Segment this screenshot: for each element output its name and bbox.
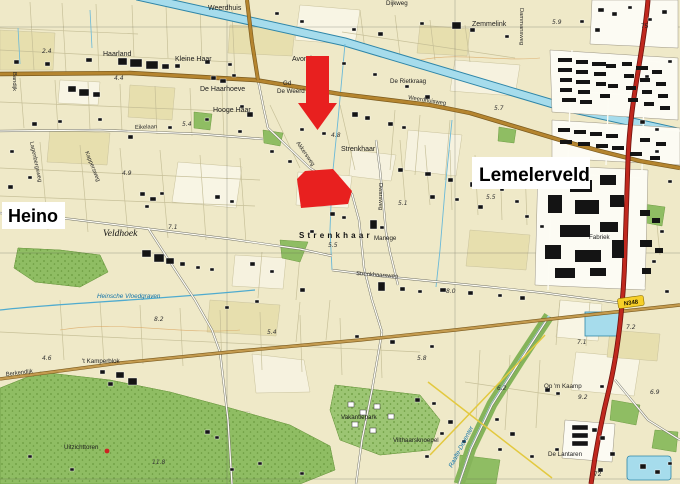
label-vakantiepark: Vakantiepark (341, 414, 378, 421)
heino-label: Heino (8, 206, 58, 226)
km-marker-75: 75 (641, 23, 649, 30)
label-vilthaarsknoepel: Vilthaarsknoepel (393, 437, 439, 444)
spot-height: 5.5 (486, 194, 496, 201)
label-manege: Manege (374, 235, 397, 242)
topo-map: Weerdhuis Haarland Kleine Haar De Haarho… (0, 0, 680, 484)
label-heinsche-vloedgraven: Heinsche Vloedgraven (97, 293, 161, 300)
spot-height: 2.4 (42, 48, 52, 55)
spot-height: 8.0 (446, 288, 456, 295)
label-dammansweg: Dammansweg (518, 8, 524, 45)
spot-height: 5.4 (182, 121, 192, 128)
label-veldhoek: Veldhoek (103, 229, 138, 239)
label-eikelaan: Eikelaan (135, 124, 157, 131)
spot-height: 11.8 (152, 459, 166, 466)
label-kleine-haar: Kleine Haar (175, 56, 212, 63)
uitzichttoren-marker (105, 449, 110, 454)
km-marker-72: 72 (594, 471, 602, 478)
spot-height: 5.8 (417, 355, 427, 362)
label-bandijk: Bandijk (11, 72, 17, 91)
spot-height: 4.9 (122, 170, 132, 177)
label-weerdhuis: Weerdhuis (208, 5, 242, 12)
label-uitzichttoren: Uitzichttoren (64, 444, 99, 451)
label-strenkhaar-hamlet: Strenkhaar (299, 231, 373, 240)
spot-height: 4.4 (114, 75, 124, 82)
label-de-rietkraag: De Rietkraag (390, 78, 427, 85)
label-gd: Gd (283, 80, 292, 87)
spot-height: 7.1 (577, 339, 587, 346)
label-dwarsweg: Dwarsweg (377, 183, 383, 210)
spot-height: 9.2 (578, 394, 588, 401)
label-hooge-haar: Hooge Haar (213, 107, 251, 114)
spot-height: 4.8 (331, 132, 341, 139)
label-de-haarhoeve: De Haarhoeve (200, 86, 245, 93)
label-dijkweg: Dijkweg (386, 0, 408, 7)
label-de-weerd: De Weerd (277, 88, 305, 95)
lemelerveld-label: Lemelerveld (479, 165, 590, 186)
spot-height: 5.4 (267, 329, 277, 336)
spot-height: 4.6 (42, 355, 52, 362)
spot-height: 5.1 (398, 200, 408, 207)
label-strenkhaar: Strenkhaar (341, 146, 376, 153)
spot-height: 6.2 (497, 385, 507, 392)
map-canvas[interactable]: Weerdhuis Haarland Kleine Haar De Haarho… (0, 0, 680, 484)
label-zemmelink: Zemmelink (472, 21, 507, 28)
spot-height: 6.9 (650, 389, 660, 396)
spot-height: 5.5 (328, 242, 338, 249)
label-kamperblok: 't Kamperblok (82, 358, 121, 365)
spot-height: 8.2 (154, 316, 164, 323)
label-haarland: Haarland (103, 51, 132, 58)
spot-height: 7.1 (168, 224, 178, 231)
spot-height: 5.9 (552, 19, 562, 26)
label-de-lantaren: De Lantaren (548, 451, 583, 458)
spot-height: 5.7 (494, 105, 504, 112)
spot-height: 7.2 (626, 324, 636, 331)
label-op-m-kaamp: Op 'm Kaamp (544, 383, 582, 390)
label-fabriek: Fabriek (589, 234, 611, 241)
